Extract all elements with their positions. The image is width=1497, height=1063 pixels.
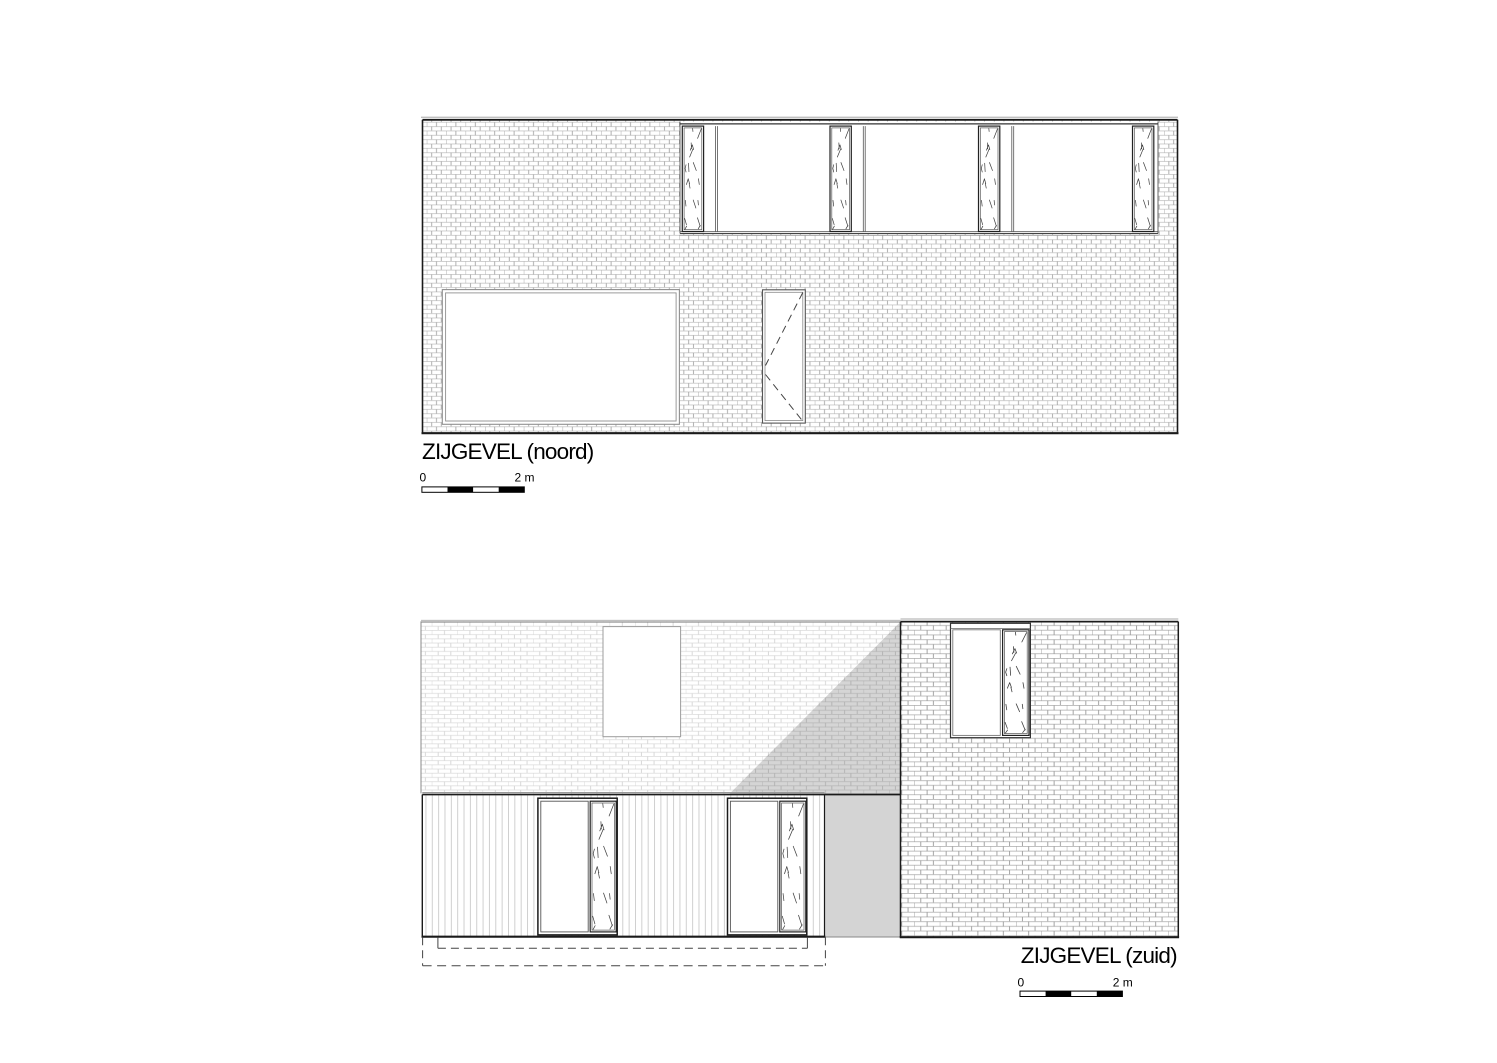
- svg-text:ZIJGEVEL (zuid): ZIJGEVEL (zuid): [1021, 943, 1177, 968]
- svg-text:2 m: 2 m: [515, 470, 535, 484]
- svg-text:ZIJGEVEL (noord): ZIJGEVEL (noord): [422, 439, 594, 464]
- svg-text:0: 0: [420, 470, 427, 484]
- svg-text:0: 0: [1018, 975, 1025, 989]
- svg-text:2 m: 2 m: [1113, 975, 1133, 989]
